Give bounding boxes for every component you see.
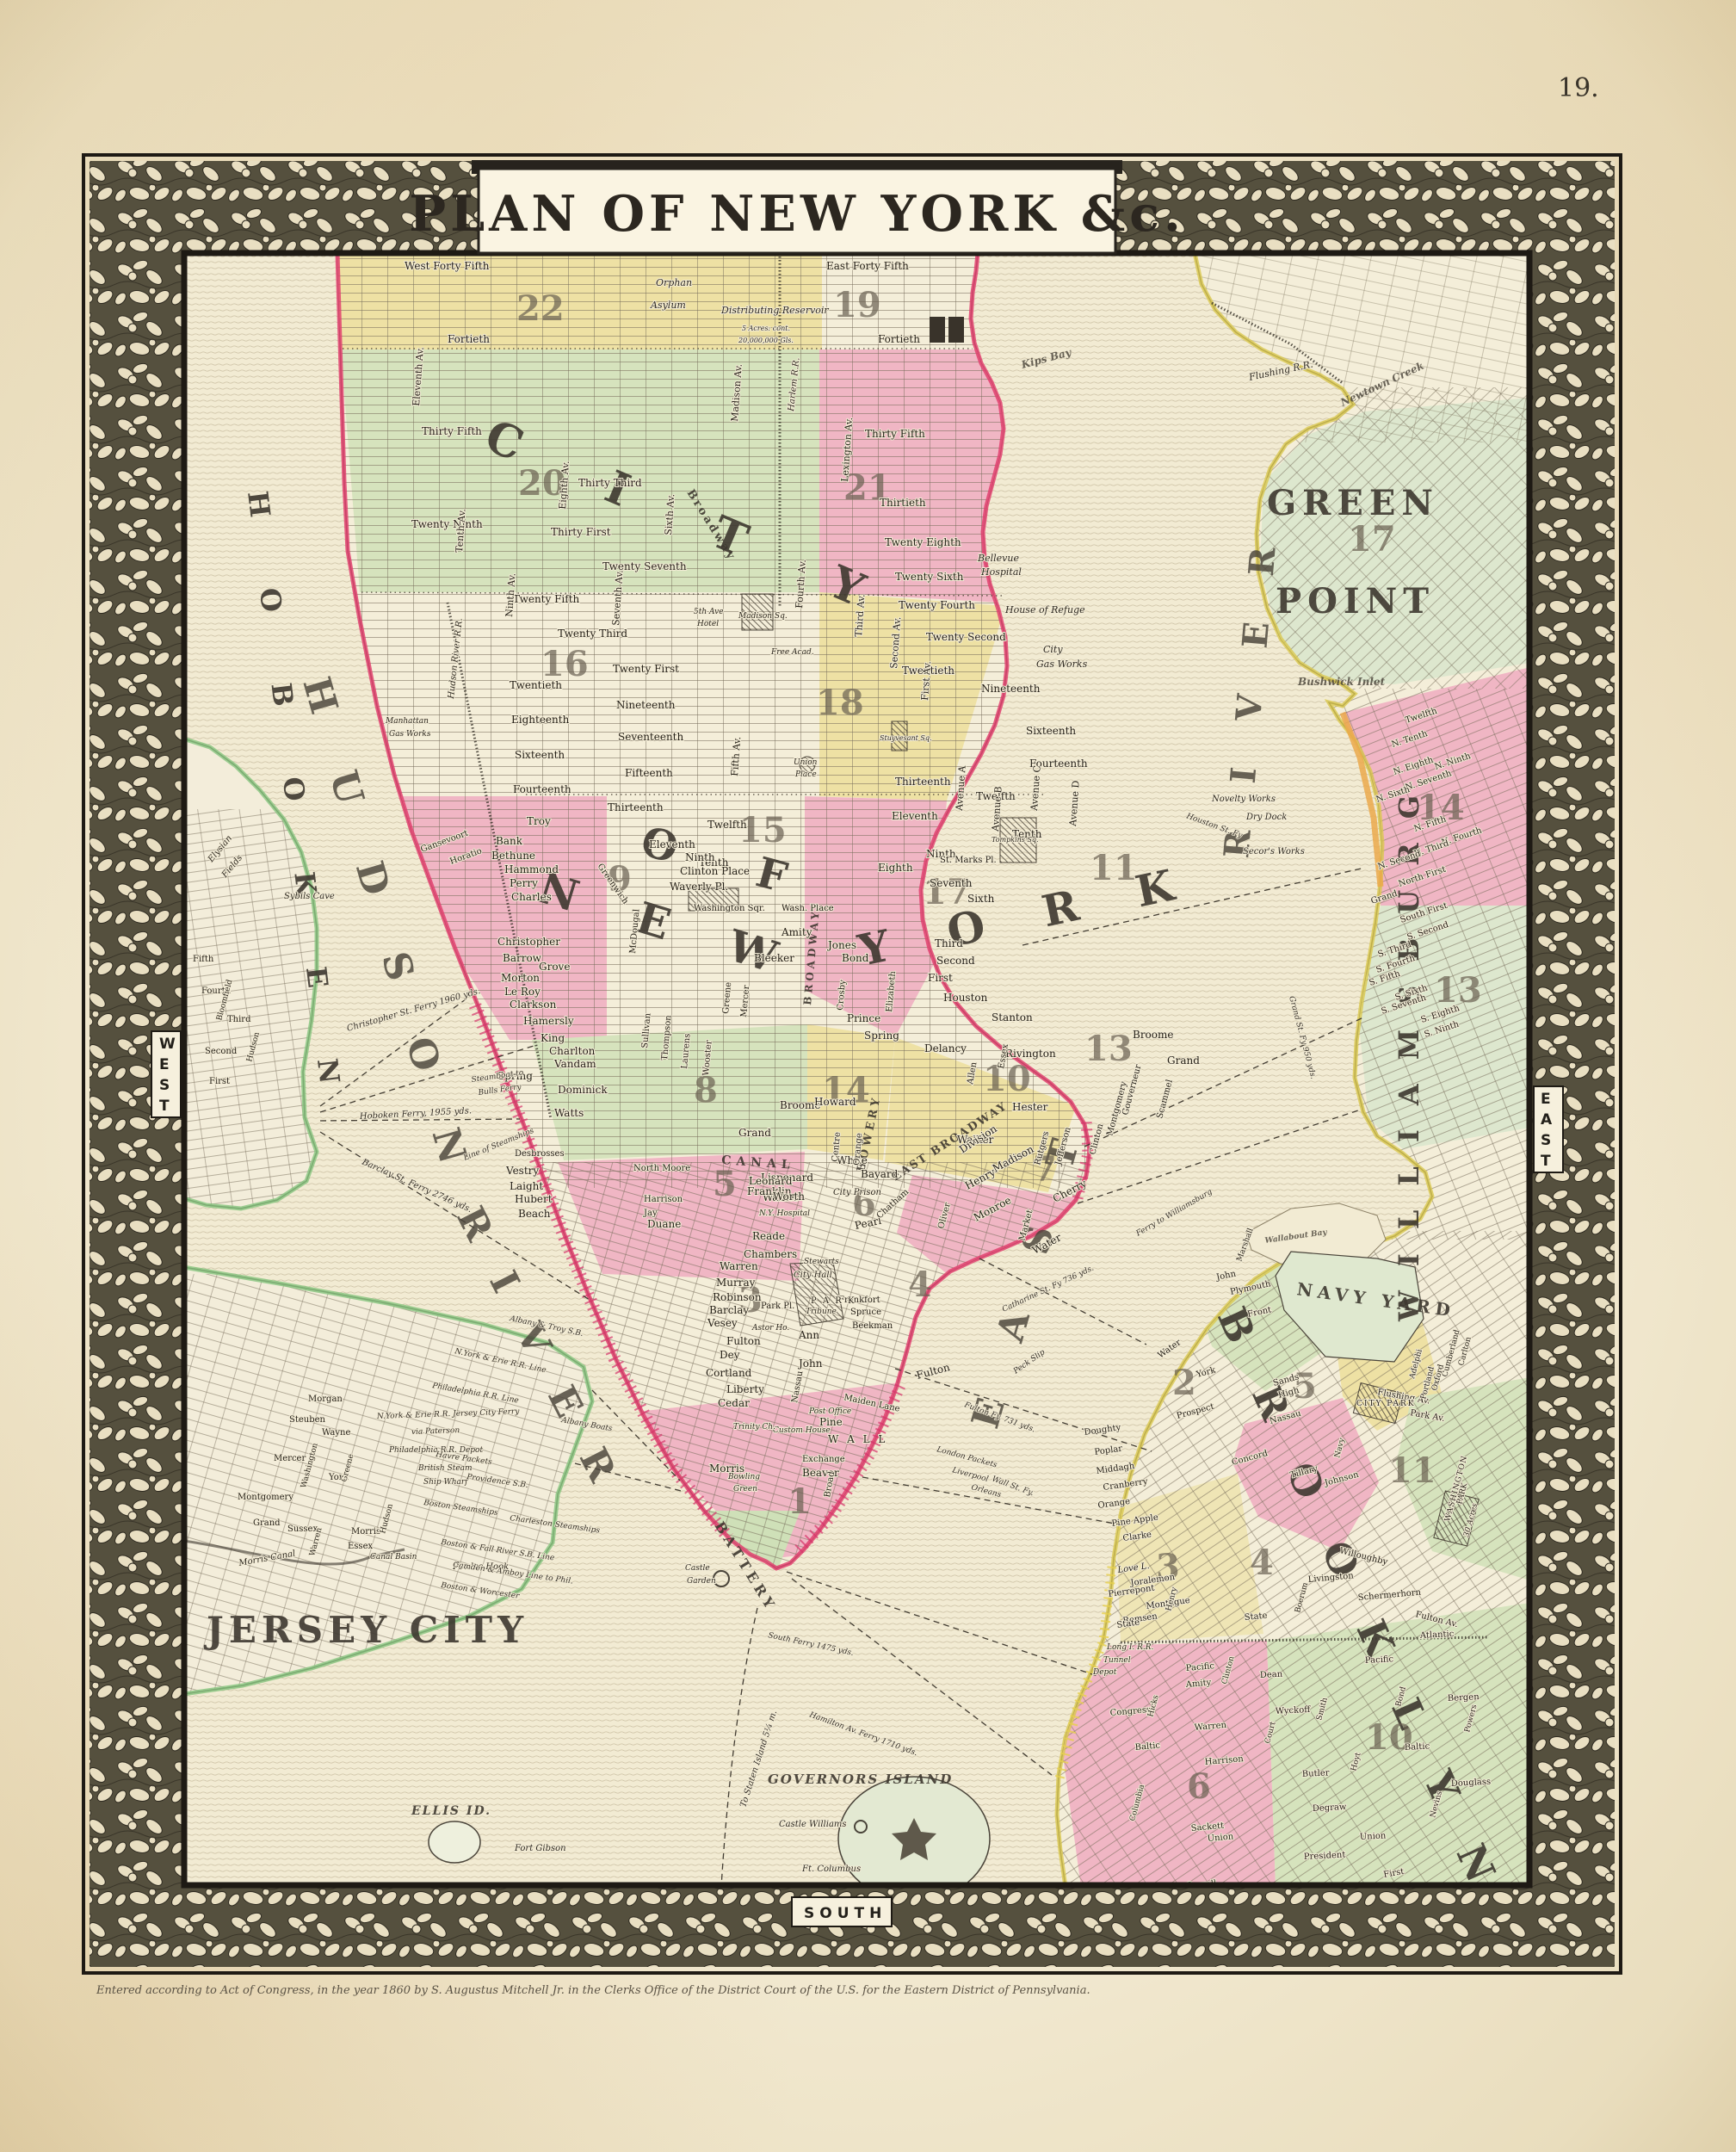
ward-number: 19 (833, 285, 881, 325)
landmark-label: Tribune (806, 1308, 837, 1316)
street-label: Christopher (497, 936, 560, 948)
street-label: Bergen (1448, 1692, 1480, 1704)
street-label: Grand (1167, 1054, 1200, 1067)
street-label: Le Roy (504, 986, 541, 998)
ward-number: 2 (1172, 1363, 1196, 1403)
street-label: St. Marks Pl. (940, 856, 997, 865)
street-label: Dean (1260, 1670, 1283, 1680)
region-label: POINT (1276, 581, 1435, 621)
street-label: Bank (496, 835, 523, 847)
map-canvas: C I T YO FN E WY O R KH O B O K E NWILLI… (0, 0, 1736, 2152)
street-label: Spring (864, 1030, 899, 1042)
street-label: Park Pl. (761, 1302, 794, 1311)
street-label: Bond (842, 952, 869, 964)
ward-number: 11 (1388, 1450, 1436, 1491)
street-label: Morris (351, 1527, 380, 1537)
street-label: Twenty Eighth (885, 536, 961, 548)
landmark-label: Madison Sq. (738, 612, 788, 621)
landmark-label: N.Y. Hospital (758, 1209, 810, 1218)
landmark-label: Hospital (980, 566, 1022, 578)
street-label: Second (205, 1047, 238, 1056)
street-label: Ann (798, 1329, 819, 1341)
street-label: Barrow (503, 952, 542, 964)
street-label: State (1244, 1611, 1268, 1623)
landmark-label: House of Refuge (1004, 604, 1085, 615)
compass-south-label: SOUTH (804, 1905, 887, 1922)
street-label: Dominick (558, 1084, 608, 1096)
street-label: Wyckoff (1276, 1705, 1312, 1716)
street-label: Beach (518, 1208, 551, 1220)
street-label: Washington Sqr. (694, 904, 765, 913)
street-label: Twenty Sixth (895, 571, 964, 583)
street-label: Ninth (685, 851, 715, 863)
street-label: Clinton Place (680, 865, 750, 877)
ward-number: 11 (1090, 848, 1138, 888)
street-label: P A R K (811, 1296, 856, 1306)
street-label: Twenty Fourth (899, 599, 975, 611)
street-label: Pacific (1365, 1654, 1394, 1666)
street-label: Thirty First (551, 526, 611, 538)
title-banner: PLAN OF NEW YORK &c. (409, 160, 1185, 253)
landmark-label: Tunnel (1103, 1656, 1131, 1665)
landmark-label: Free Acad. (770, 648, 814, 657)
street-label: Seventeenth (618, 731, 684, 743)
street-label: Broome (1133, 1029, 1173, 1041)
street-label: Degraw (1313, 1803, 1348, 1814)
landmark-label: Hotel (696, 620, 719, 628)
landmark-label: Ft. Columbus (801, 1864, 861, 1874)
street-label: Fourteenth (513, 783, 571, 795)
street-label: Hester (1012, 1101, 1048, 1113)
street-label: Beekman (852, 1321, 893, 1331)
landmark-label: Novelty Works (1211, 795, 1276, 804)
street-label: Fifth (193, 955, 214, 964)
street-label: Rivington (1005, 1048, 1056, 1060)
landmark-label: City (1043, 644, 1063, 655)
landmark-label: 5 Acres: cont. (742, 325, 790, 332)
ward-number: 18 (816, 683, 864, 723)
landmark-label: City Hall (794, 1271, 832, 1280)
street-label: Thirteenth (608, 801, 664, 813)
street-label: Mercer (274, 1454, 306, 1463)
street-label: CITY PARK (1356, 1400, 1415, 1408)
landmark-label: Gas Works (389, 730, 431, 739)
landmark-label: Canal Basin (370, 1553, 417, 1561)
street-label: Eighteenth (511, 714, 570, 726)
street-label: West Forty Fifth (405, 260, 490, 272)
street-label: Bayard (861, 1168, 899, 1180)
street-label: Exchange (802, 1455, 845, 1464)
street-label: Stanton (992, 1011, 1033, 1023)
street-label: Worth (773, 1190, 805, 1203)
landmark-label: 5th Ave (694, 608, 724, 616)
street-label: Troy (527, 815, 551, 827)
compass-west: WEST (151, 1031, 181, 1117)
atlas-page: C I T YO FN E WY O R KH O B O K E NWILLI… (0, 0, 1736, 2152)
street-label: Harrison (644, 1195, 683, 1204)
street-label: Eleventh (892, 810, 938, 822)
street-label: Twenty First (613, 663, 679, 675)
street-label: Twenty Ninth (411, 518, 483, 530)
street-label: Sixth (967, 893, 995, 905)
landmark-label: Gas Works (1036, 659, 1088, 670)
street-label: Dey (720, 1349, 740, 1361)
street-label: Thirtieth (880, 497, 926, 509)
street-label: Jay (643, 1209, 658, 1218)
street-label: Prince (847, 1012, 880, 1024)
street-label: Vesey (707, 1317, 738, 1329)
street-label: Hubert (515, 1193, 553, 1205)
region-label: GREEN (1267, 483, 1439, 523)
street-label: Third (935, 937, 963, 949)
street-label: Perry (510, 877, 538, 889)
ward-number: 22 (516, 288, 565, 329)
street-label: W A L L (828, 1433, 887, 1445)
street-label: Nineteenth (616, 699, 676, 711)
landmark-label: Long I. R.R. (1106, 1643, 1154, 1652)
landmark-label: Bowling (727, 1473, 760, 1481)
street-label: Sixteenth (515, 749, 565, 761)
street-label: Bleeker (754, 952, 794, 964)
landmark-label: 20,000,000 Gls. (738, 337, 794, 344)
street-label: Houston (943, 992, 988, 1004)
street-label: Twelfth (707, 819, 747, 831)
landmark-label: Union (794, 758, 818, 767)
street-label: Duane (647, 1218, 681, 1230)
street-label: Eleventh (649, 838, 695, 850)
landmark-label: Tompkins Sq. (992, 836, 1039, 844)
street-label: Vandam (553, 1058, 596, 1070)
water-label: Bushwick Inlet (1297, 676, 1386, 688)
landmark-label: Stewarts (804, 1258, 839, 1266)
landmark-label: Stuyvesant Sq. (880, 734, 932, 742)
street-label: Charles (511, 891, 552, 903)
street-label: Steuben (289, 1415, 326, 1425)
street-label: Third (227, 1015, 251, 1024)
ferry-label: via Paterson (411, 1426, 460, 1437)
street-label: Morton (501, 972, 540, 984)
street-label: Thirty Fifth (865, 428, 925, 440)
ward-number: 4 (908, 1265, 932, 1305)
street-label: Charlton (549, 1045, 596, 1057)
street-label: Cortland (706, 1367, 752, 1379)
landmark-label: Secor's Works (1243, 847, 1305, 856)
street-label: Twentieth (510, 679, 562, 691)
ward-number: 6 (1187, 1766, 1211, 1807)
ward-number: 13 (1084, 1029, 1133, 1069)
landmark-label: Astor Ho. (751, 1324, 789, 1333)
street-label: Liberty (726, 1383, 764, 1395)
street-label: Thirteenth (895, 776, 951, 788)
landmark-label: Bellevue (977, 553, 1019, 564)
street-label: Twenty Fifth (513, 593, 580, 605)
landmark-label: Manhattan (385, 717, 429, 726)
street-label: Fortieth (448, 333, 490, 345)
street-label: Jones (826, 939, 856, 951)
landmark-label: Asylum (650, 300, 686, 311)
street-label: Eighth (878, 862, 913, 874)
street-label: Thirty Fifth (422, 425, 482, 437)
street-label: First (209, 1077, 230, 1086)
ward-number: 1 (788, 1481, 812, 1522)
landmark-label: Orphan (656, 277, 692, 288)
landmark-label: Castle (685, 1564, 710, 1573)
street-label: Delancy (924, 1042, 967, 1054)
street-label: Watts (554, 1107, 584, 1119)
map-title: PLAN OF NEW YORK &c. (409, 185, 1185, 243)
street-label: Laight (510, 1180, 543, 1192)
street-label: Fortieth (878, 333, 920, 345)
landmark-label: Trinity Ch. (733, 1423, 775, 1432)
ferry-label: British Steam (417, 1464, 473, 1473)
street-label: Fulton (726, 1335, 761, 1347)
street-label: Bethune (491, 850, 535, 862)
street-label: Morgan (308, 1394, 343, 1404)
street-label: Warren (720, 1260, 758, 1272)
ward-number: 16 (541, 644, 589, 684)
region-label: JERSEY CITY (203, 1609, 528, 1651)
compass-south: SOUTH (792, 1897, 892, 1926)
street-label: Montgomery (238, 1493, 293, 1502)
street-label: John (797, 1357, 823, 1370)
street-label: Sixteenth (1026, 725, 1076, 737)
street-label: Hammond (504, 863, 559, 875)
street-label: Wash. Place (782, 904, 834, 913)
street-label: Fifteenth (625, 767, 673, 779)
landmark-label: Custom House (773, 1426, 831, 1435)
page-number: 19. (1558, 73, 1599, 103)
street-label: Grove (539, 961, 570, 973)
street-label: Thirty Third (578, 477, 642, 489)
street-label: Howard (814, 1096, 856, 1108)
street-label: Baltic (1405, 1741, 1430, 1753)
street-label: Grand (253, 1518, 281, 1528)
street-label: East Forty Fifth (826, 260, 909, 272)
street-label: Chambers (744, 1248, 797, 1260)
landmark-label: Place (794, 770, 817, 779)
street-label: Essex (348, 1542, 373, 1551)
copyright-line: Entered according to Act of Congress, in… (96, 1984, 1090, 1997)
street-label: Clarkson (510, 999, 557, 1011)
street-label: Cedar (718, 1397, 750, 1409)
landmark-label: Green (733, 1485, 757, 1493)
street-label: Amity (781, 926, 812, 938)
street-label: Union (1360, 1831, 1387, 1842)
street-label: Leonard (749, 1175, 793, 1187)
landmark-label: Post Office (808, 1407, 851, 1416)
street-label: Robinson (713, 1291, 762, 1303)
street-label: Nineteenth (981, 683, 1041, 695)
street-label: Hamersly (523, 1015, 574, 1027)
landmark-label: Distributing Reservoir (720, 305, 829, 316)
street-label: Barclay (709, 1304, 749, 1316)
ward-number: 17 (1348, 519, 1396, 560)
street-label: First (928, 972, 953, 984)
street-label: Spruce (850, 1308, 881, 1317)
region-label: ELLIS ID. (411, 1804, 491, 1818)
landmark-label: Castle Williams (779, 1820, 847, 1829)
compass-east: EAST (1534, 1086, 1563, 1172)
street-label: Seventh (930, 877, 973, 889)
street-label: Grand (738, 1127, 771, 1139)
landmark-label: Garden (687, 1577, 716, 1586)
street-label: King (541, 1032, 565, 1044)
street-label: Reade (752, 1230, 785, 1242)
ward-number: 4 (1250, 1543, 1274, 1583)
landmark-label: Fort Gibson (514, 1844, 566, 1853)
street-label: Desbrosses (515, 1149, 565, 1159)
landmark-label: Dry Dock (1245, 813, 1287, 822)
ellis-island (429, 1821, 480, 1863)
street-label: Atlantic (1419, 1629, 1455, 1641)
landmark-label: City Prison (833, 1188, 881, 1197)
ward-number: 5 (713, 1164, 737, 1204)
street-label: Wayne (322, 1428, 350, 1438)
street-label: Second (936, 955, 975, 967)
street-label: Waverly Pl. (670, 881, 728, 893)
street-label: Twenty Second (926, 631, 1006, 643)
street-label: Vestry (505, 1165, 539, 1177)
street-label: Murray (716, 1277, 756, 1289)
street-label: Butler (1302, 1768, 1330, 1779)
street-label: Twenty Third (558, 628, 627, 640)
ferry-label: Ship Wharf (423, 1478, 469, 1487)
landmark-label: Sybils Cave (284, 892, 335, 901)
street-label: North Moore (633, 1164, 690, 1173)
landmark-label: Depot (1092, 1668, 1117, 1677)
region-label: GOVERNORS ISLAND (768, 1772, 953, 1787)
